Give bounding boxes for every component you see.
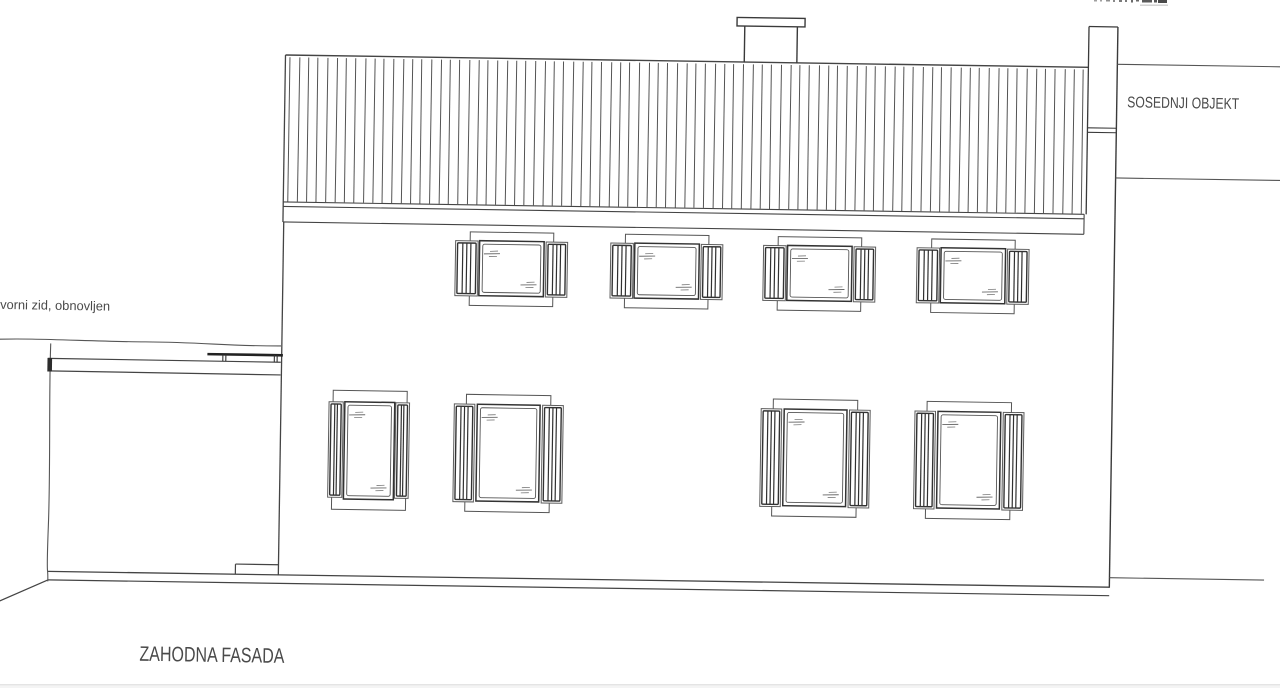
svg-text:vorni zid, obnovljen: vorni zid, obnovljen — [0, 297, 110, 314]
svg-text:SOSEDNJI OBJEKT: SOSEDNJI OBJEKT — [1127, 94, 1240, 113]
svg-text:ZAHODNA FASADA: ZAHODNA FASADA — [139, 643, 284, 668]
